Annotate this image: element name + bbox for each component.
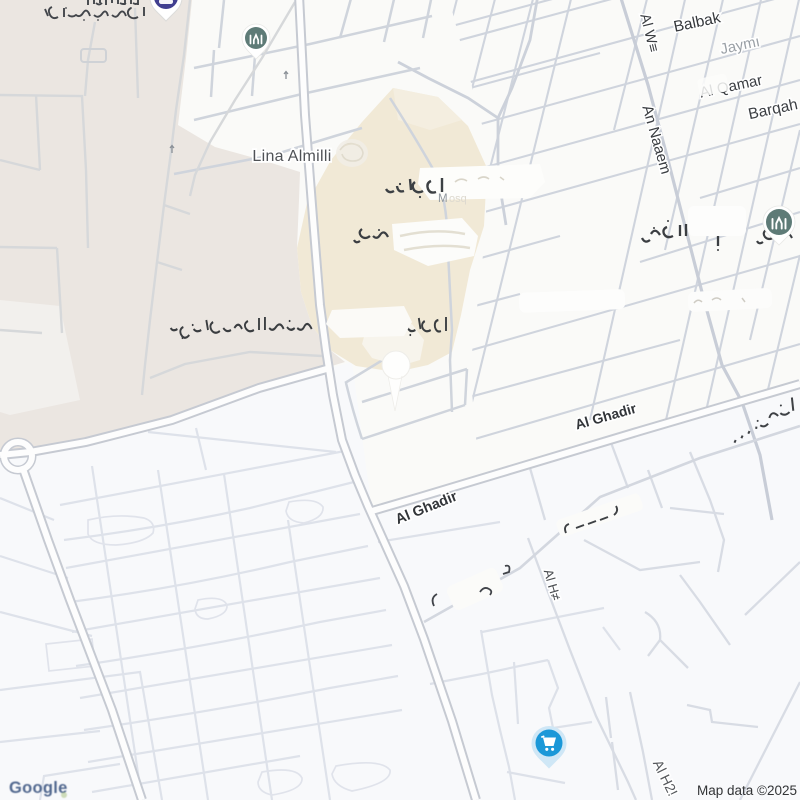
svg-text:osq: osq xyxy=(449,193,467,205)
svg-text:Map data ©2025: Map data ©2025 xyxy=(697,783,797,798)
svg-text:Lina Almilli: Lina Almilli xyxy=(252,148,331,165)
svg-text:M: M xyxy=(438,193,448,205)
svg-text:Google: Google xyxy=(9,779,68,797)
